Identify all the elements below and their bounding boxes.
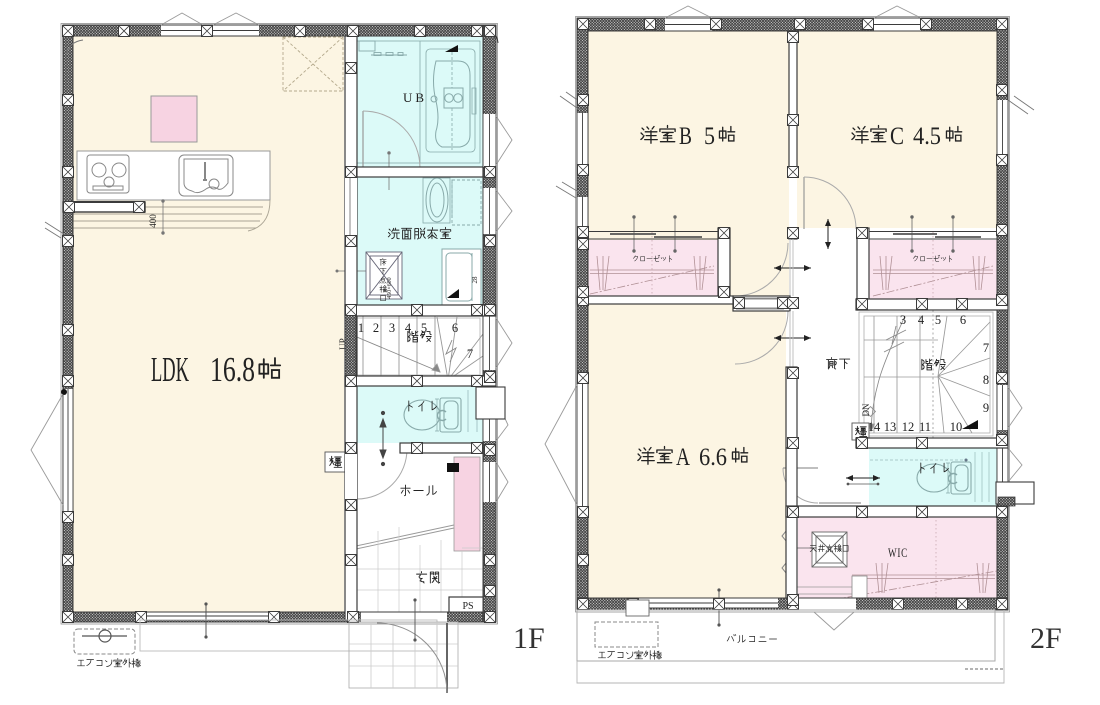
svg-text:1: 1	[358, 321, 364, 335]
svg-text:A: A	[676, 444, 690, 471]
svg-text:LDK: LDK	[151, 350, 189, 389]
svg-text:6.6: 6.6	[699, 444, 727, 471]
svg-text:8: 8	[983, 373, 989, 387]
svg-text:B: B	[679, 123, 692, 150]
svg-text:2F: 2F	[1030, 622, 1062, 655]
svg-text:14: 14	[868, 420, 881, 434]
svg-text:450×600: 450×600	[387, 277, 393, 298]
svg-text:3: 3	[389, 321, 395, 335]
svg-text:C: C	[890, 123, 904, 150]
svg-text:6: 6	[960, 313, 966, 327]
svg-text:7: 7	[983, 341, 989, 355]
svg-text:10: 10	[950, 420, 963, 434]
svg-text:5: 5	[935, 313, 941, 327]
svg-text:28: 28	[471, 276, 479, 284]
svg-text:13: 13	[884, 420, 897, 434]
svg-text:PS: PS	[462, 601, 473, 612]
svg-text:UB: UB	[403, 90, 427, 105]
svg-text:1F: 1F	[513, 622, 545, 655]
svg-text:5: 5	[704, 123, 715, 150]
svg-text:12: 12	[902, 420, 915, 434]
svg-text:2: 2	[373, 321, 379, 335]
svg-text:9: 9	[983, 401, 989, 415]
svg-text:4: 4	[405, 321, 412, 335]
svg-text:4: 4	[918, 313, 925, 327]
svg-text:4.5: 4.5	[913, 123, 941, 150]
svg-text:7: 7	[467, 347, 473, 361]
svg-text:6: 6	[452, 321, 458, 335]
svg-text:400: 400	[148, 214, 158, 228]
svg-text:11: 11	[919, 420, 931, 434]
svg-text:16.8: 16.8	[210, 350, 255, 389]
svg-text:3: 3	[900, 313, 906, 327]
svg-text:DN: DN	[861, 403, 871, 416]
svg-text:WIC: WIC	[888, 545, 908, 560]
